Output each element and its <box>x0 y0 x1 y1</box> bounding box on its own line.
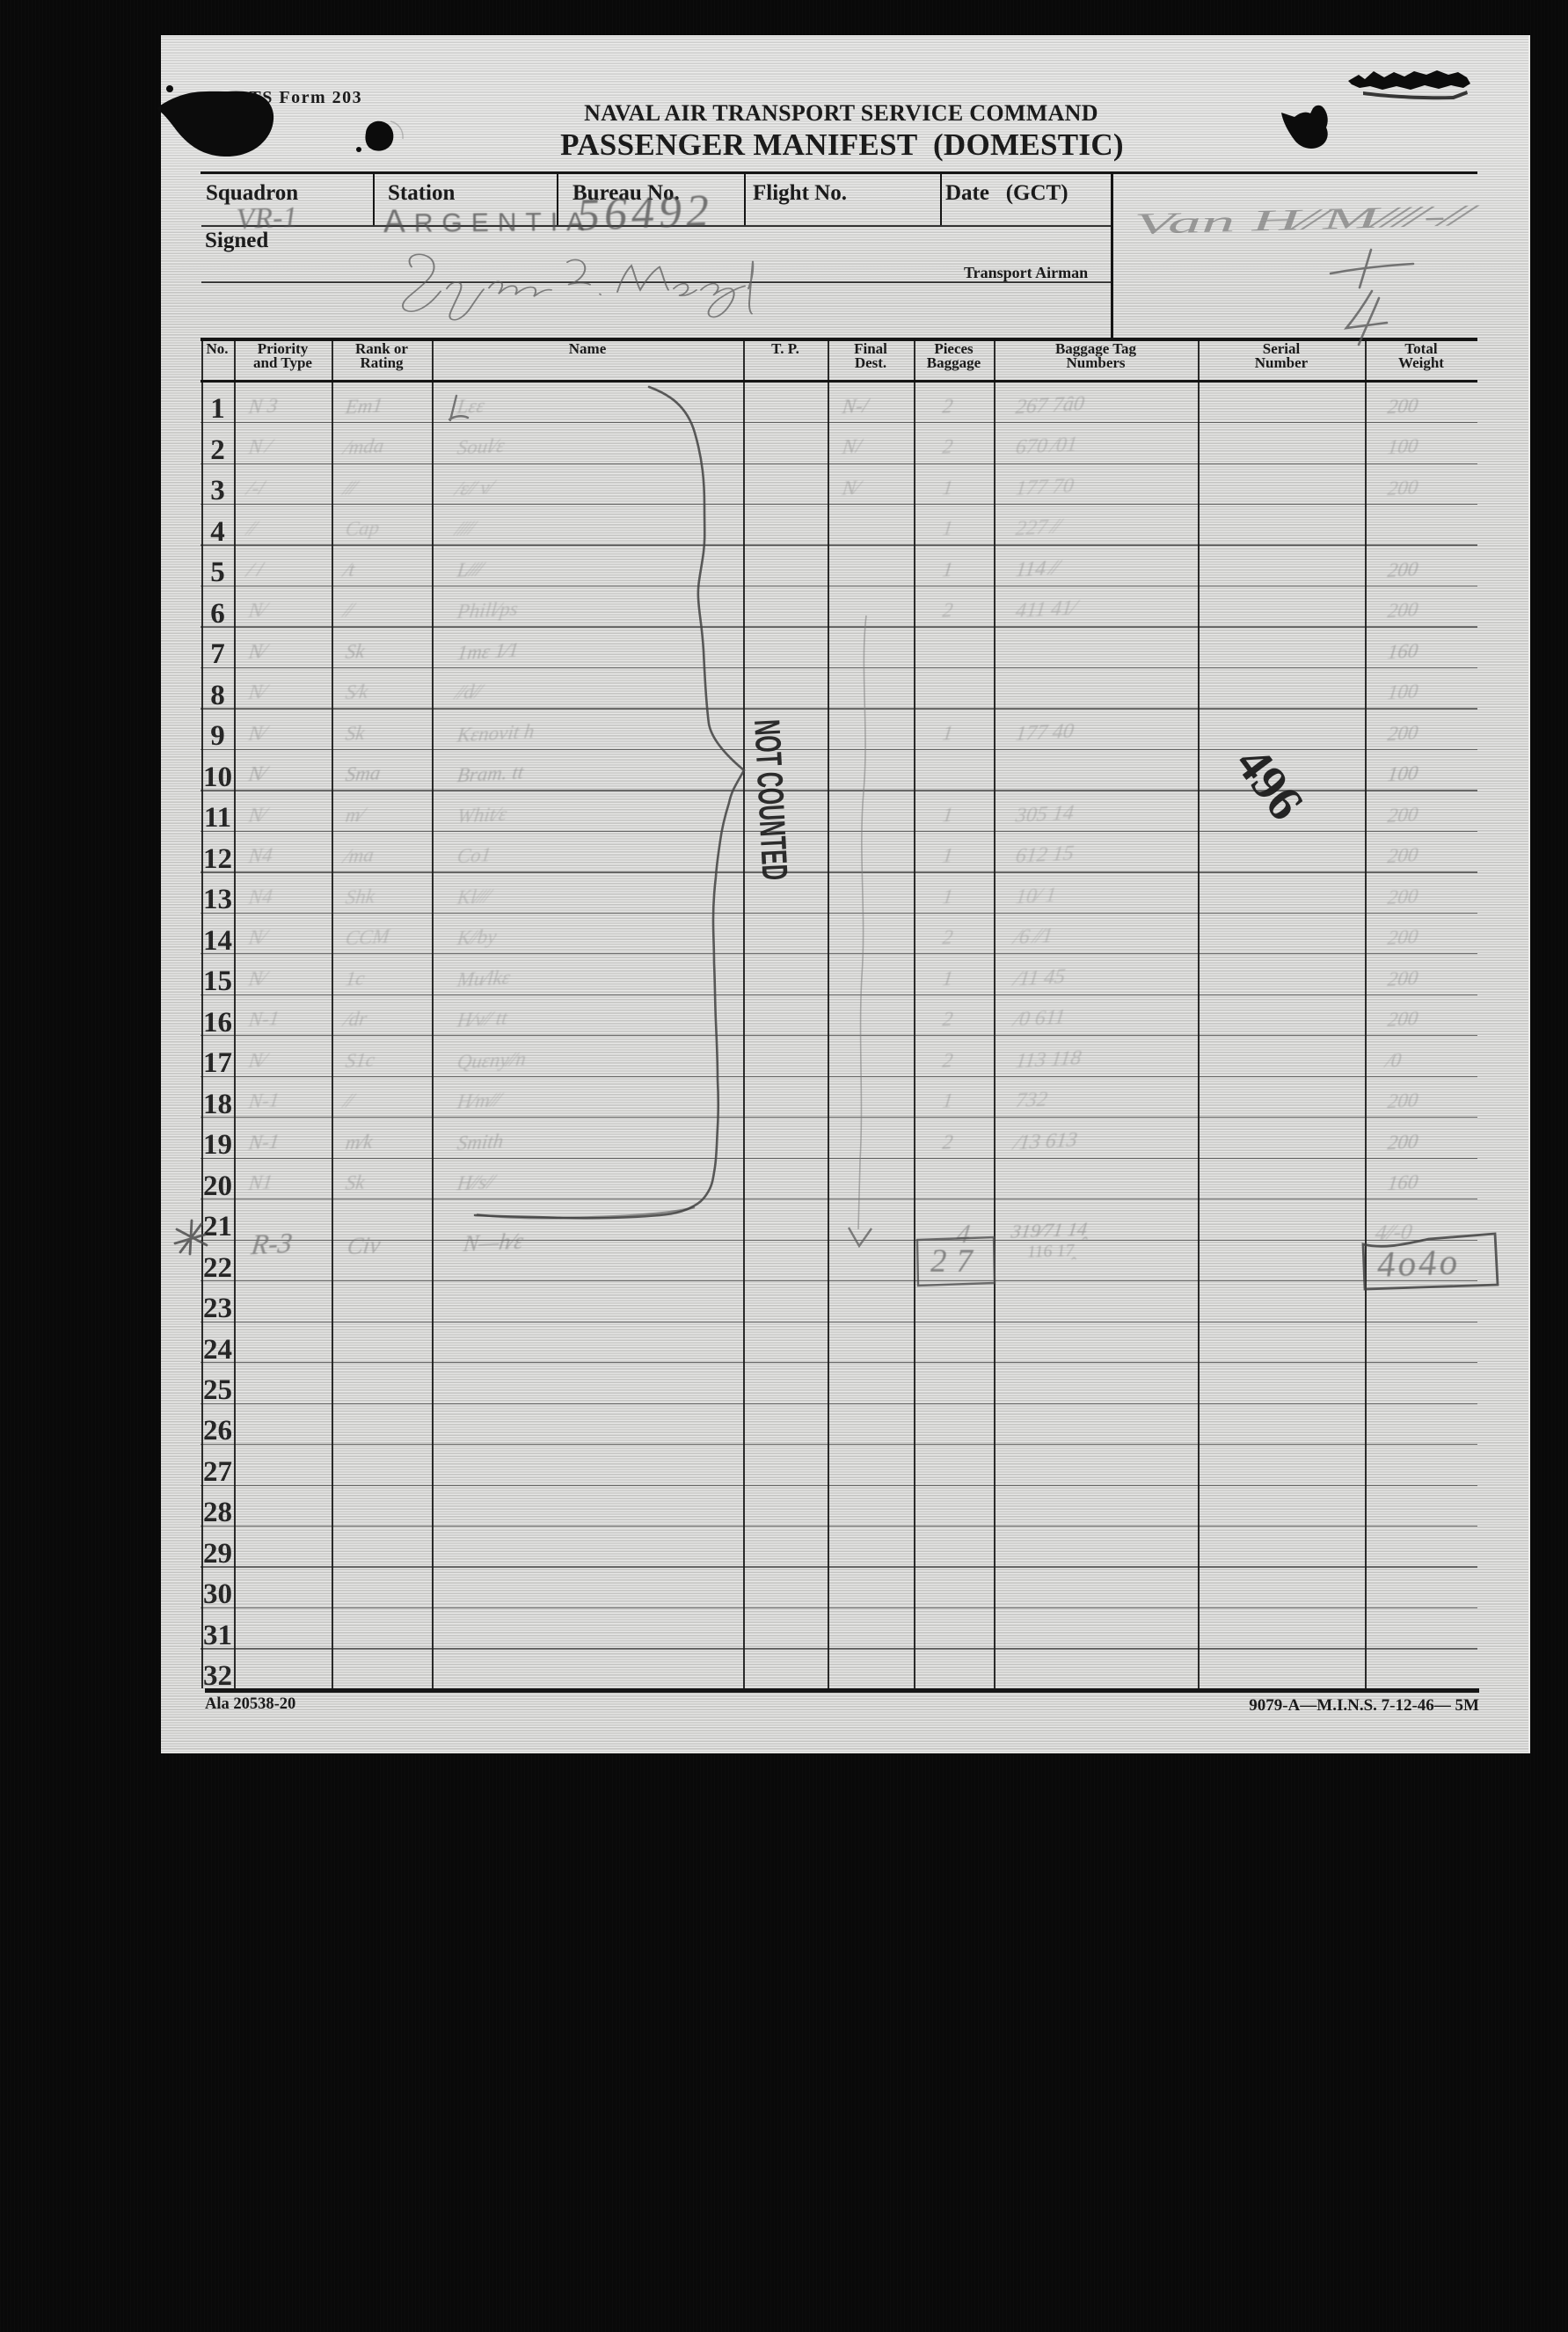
svg-text:NOT COUNTED: NOT COUNTED <box>747 718 796 881</box>
svg-text:496: 496 <box>1225 737 1315 830</box>
svg-text:Van H∕∕M∕∕∕∕-∕∕: Van H∕∕M∕∕∕∕-∕∕ <box>1134 200 1481 241</box>
